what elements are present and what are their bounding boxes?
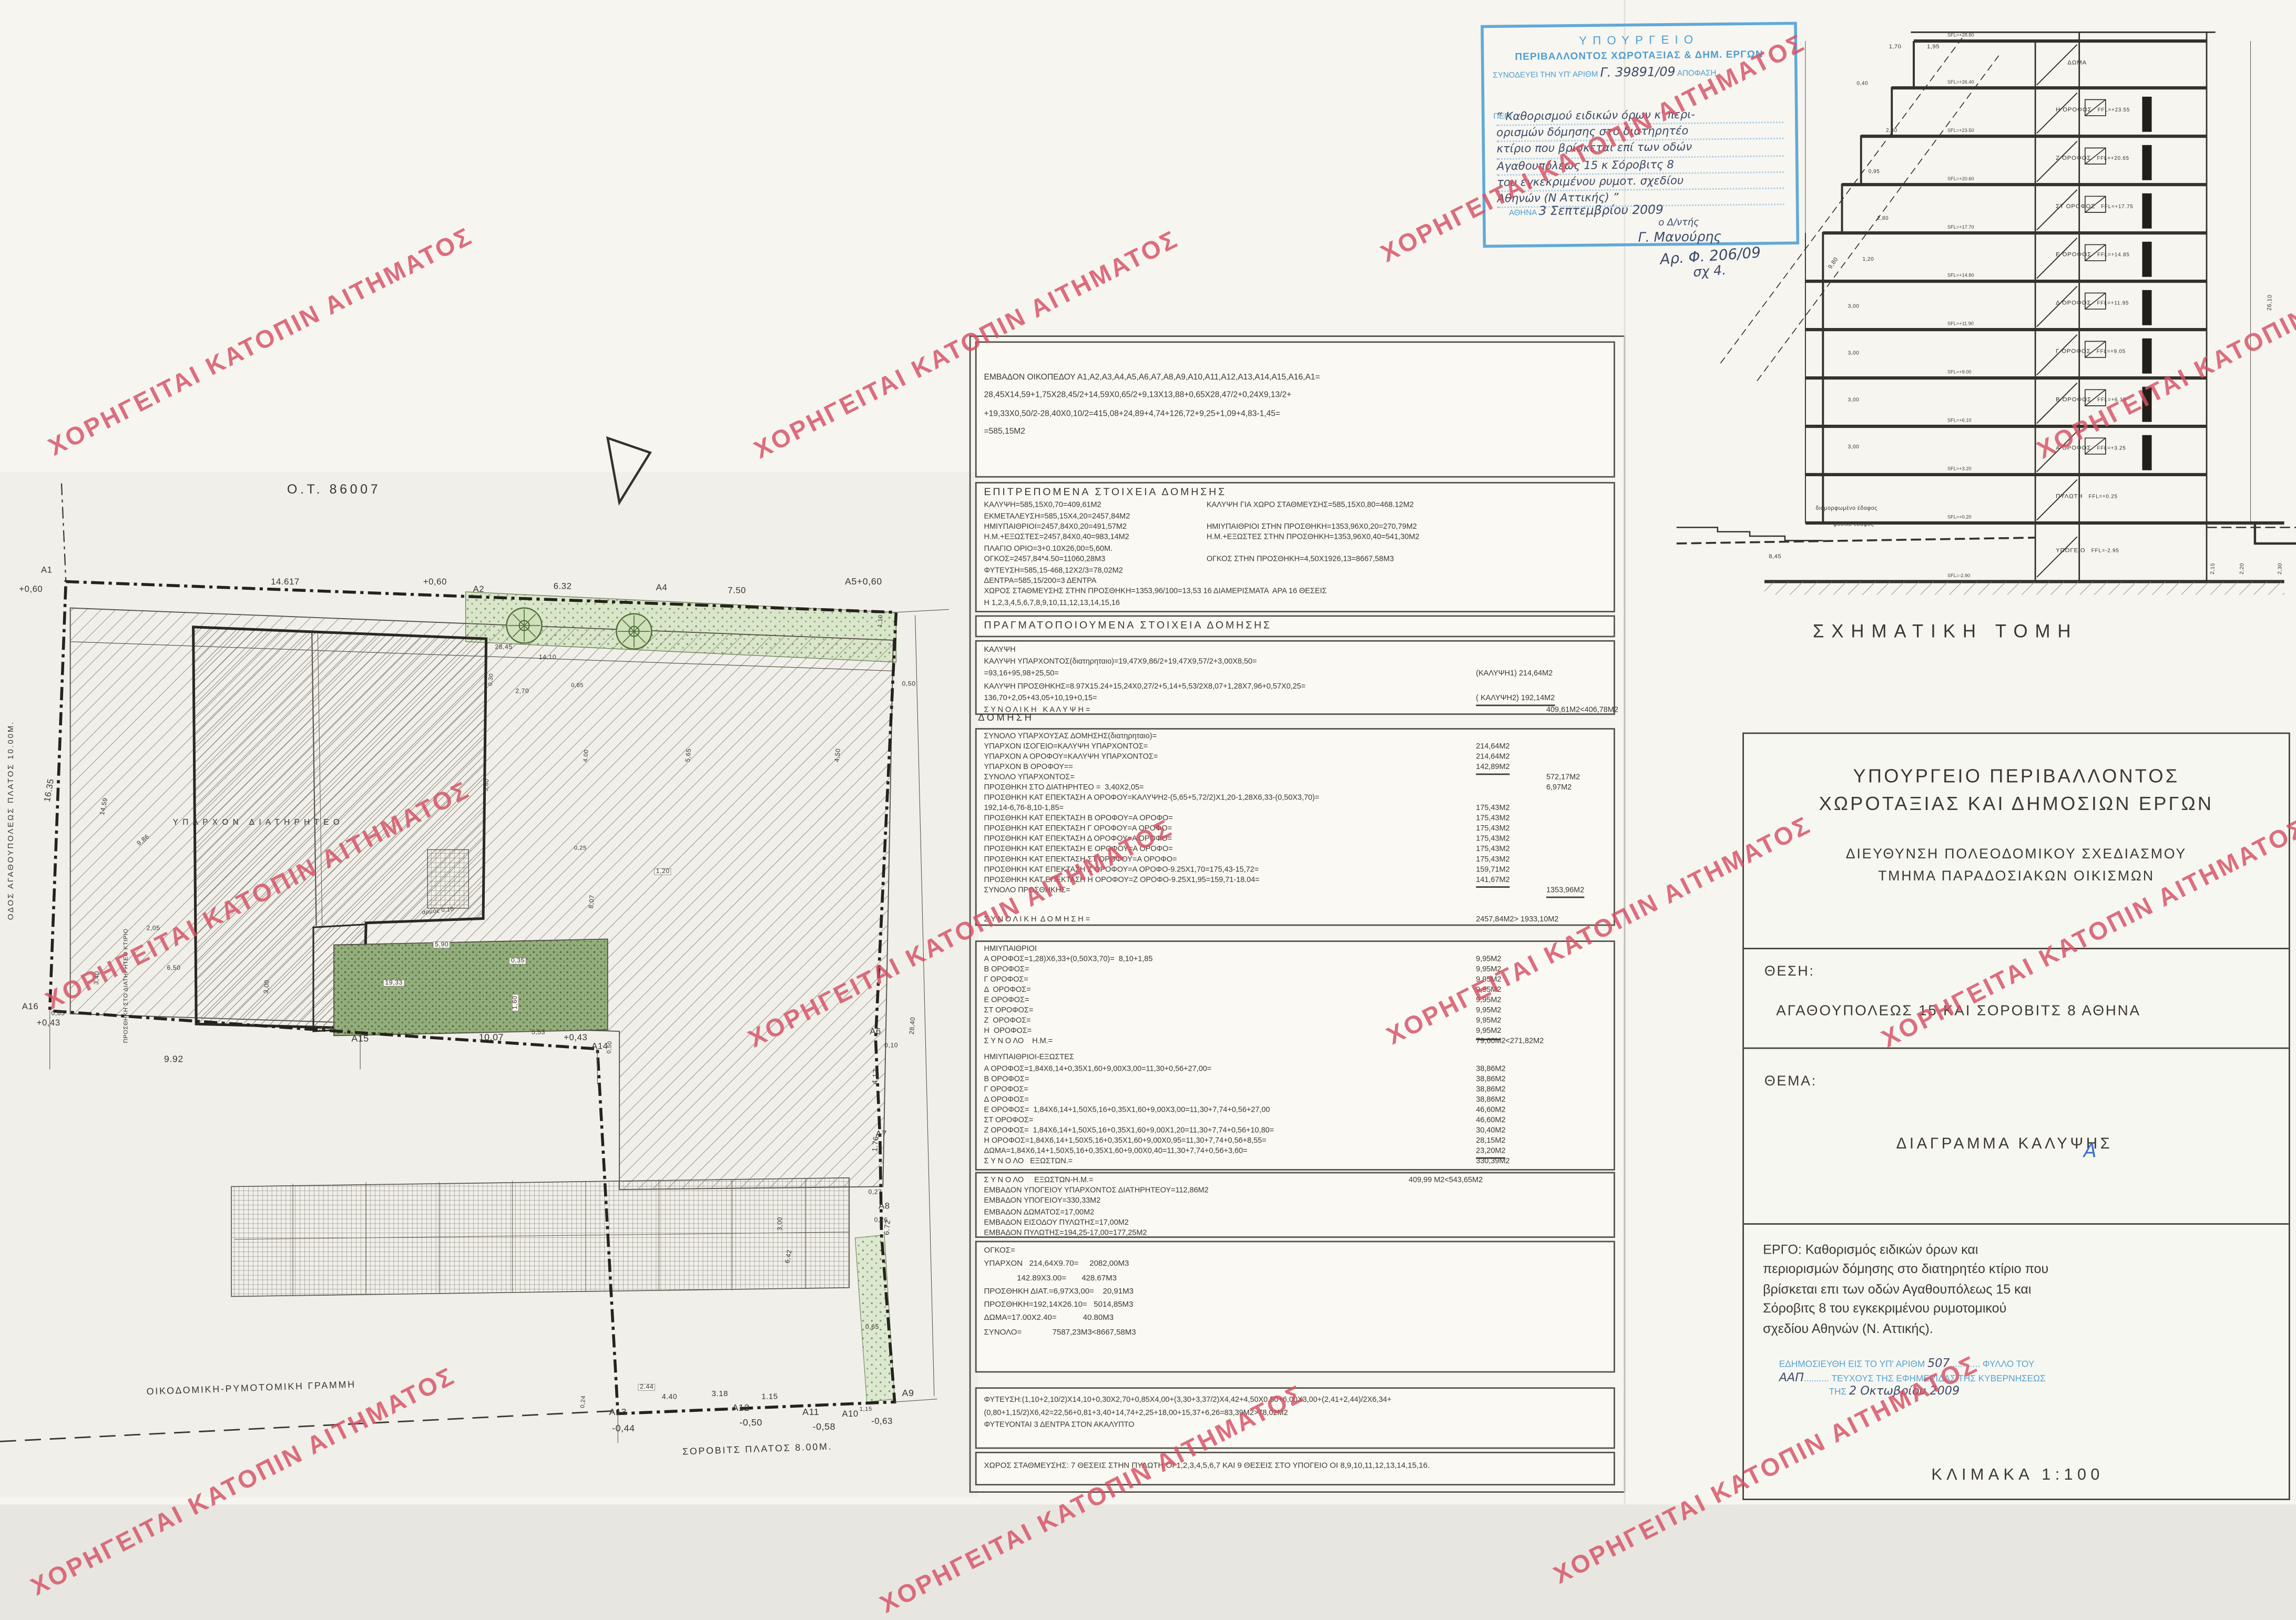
calc-row: ΠΡΟΣΘΗΚΗ ΚΑΤ ΕΠΕΚΤΑΣΗ Ε ΟΡΟΦΟΥ=Α ΟΡΟΦΟ=1… xyxy=(984,845,1607,856)
sfl-label: SFL=+28.80 xyxy=(1947,32,1974,38)
sfl-label: SFL=+17.70 xyxy=(1947,224,1974,230)
divider xyxy=(1744,948,2289,949)
stamp-ref-row: ΣΥΝΟΔΕΥΕΙ ΤΗΝ ΥΠ' ΑΡΙΘΜ Γ. 39891/09 ΑΠΟΦ… xyxy=(1493,64,1789,82)
calc-row: ΟΓΚΟΣ=2457,84*4.50=11060,28Μ3ΟΓΚΟΣ ΣΤΗΝ … xyxy=(984,556,1607,567)
plan-label: 0,24 xyxy=(580,1395,587,1408)
allowed-terms-box: ΕΠΙΤΡΕΠΟΜΕΝΑ ΣΤΟΙΧΕΙΑ ΔΟΜΗΣΗΣ ΚΑΛΥΨΗ=585… xyxy=(975,482,1615,612)
volume-box: ΟΓΚΟΣ=ΥΠΑΡΧΟΝ 214,64Χ9.70= 2082,00Μ3 142… xyxy=(975,1241,1615,1373)
calc-row: Η 1,2,3,4,5,6,7,8,9,10,11,12,13,14,15,16 xyxy=(984,599,1607,610)
calc-row: ΔΩΜΑ=1,84Χ6,14+1,50Χ5,16+0,35Χ1,60+9,00Χ… xyxy=(984,1147,1607,1157)
calc-row: ΠΡΟΣΘΗΚΗ ΚΑΤ ΕΠΕΚΤΑΣΗ Η ΟΡΟΦΟΥ=Ζ ΟΡΟΦΟ-9… xyxy=(984,876,1607,887)
coverage-box: ΚΑΛΥΨΗΚΑΛΥΨΗ ΥΠΑΡΧΟΝΤΟΣ(διατηρηταιο)=19,… xyxy=(975,640,1615,715)
plan-label: 4.17 xyxy=(873,1069,881,1084)
plan-label: +0,43 xyxy=(37,1020,60,1029)
calc-row: ΠΡΟΣΘΗΚΗ ΚΑΤ ΕΠΕΚΤΑΣΗ ΣΤ ΟΡΟΦΟΥ=Α ΟΡΟΦΟ=… xyxy=(984,856,1607,866)
gazette-date: 2 Οκτωβρίου 2009 xyxy=(1849,1385,1960,1398)
section-dim: 2,80 xyxy=(1877,217,1889,222)
domisi-title: ΔΟΜΗΣΗ xyxy=(978,713,1034,724)
plan-label: 0,50 xyxy=(902,681,916,688)
location-label: ΘΕΣΗ: xyxy=(1764,964,1815,980)
plan-label: -0,58 xyxy=(813,1424,835,1433)
plan-label: Α12 xyxy=(732,1405,750,1414)
calc-line: ΣΥΝΟΛΟ= 7587,23Μ3<8667,58Μ3 xyxy=(984,1327,1607,1340)
plan-label: 28,40 xyxy=(909,1017,917,1034)
gazette-series: ΑΑΠ xyxy=(1779,1370,1804,1383)
calc-row: Η ΟΡΟΦΟΣ=9,95Μ2 xyxy=(984,1028,1607,1038)
section-dim: φυσικό έδαφος xyxy=(1833,523,1874,529)
tree-icon xyxy=(616,614,651,649)
section-dim: 3,00 xyxy=(1848,305,1860,310)
calc-line: ΦΥΤΕΥΣΗ:(1,10+2,10/2)Χ14,10+0,30Χ2,70+0,… xyxy=(984,1395,1607,1407)
plan-label: 9.92 xyxy=(164,1056,183,1065)
plan-label: Α8 xyxy=(879,1203,890,1212)
section-dim: διαμορφωμένο έδαφος xyxy=(1815,507,1877,512)
plan-label: Α15 xyxy=(351,1035,369,1045)
calc-line: +19,33Χ0,50/2-28,40Χ0,10/2=415,08+24,89+… xyxy=(984,405,1607,424)
section-dim: 3,00 xyxy=(1848,352,1860,357)
plan-label: 6.32 xyxy=(554,583,572,592)
section-dim: 0,40 xyxy=(1856,82,1868,87)
calc-row: Σ Υ Ν Ο Λ Ι Κ Η Δ Ο Μ Η Σ Η =2457,84Μ2> … xyxy=(984,916,1607,926)
stamp-ref-number: Γ. 39891/09 xyxy=(1600,66,1675,81)
stamp-title: ΥΠΟΥΡΓΕΙΟ xyxy=(1484,32,1794,48)
calc-line: 142.89Χ3.00= 428.67Μ3 xyxy=(984,1273,1607,1286)
section-dim: 8,45 xyxy=(1769,553,1781,559)
calc-row: Σ Υ Ν Ο ΛΟ ΕΞΩΣΤΩΝ-Η.Μ.=409,99 Μ2<543,65… xyxy=(984,1176,1607,1187)
calc-row: Β ΟΡΟΦΟΣ=38,86Μ2 xyxy=(984,1074,1607,1085)
floor-label: Δ ΟΡΟΦΟΣFFL=+11.95 xyxy=(2056,299,2129,306)
floor-label: Γ ΟΡΟΦΟΣFFL=+9.05 xyxy=(2056,347,2126,355)
calc-row: ΕΜΒΑΔΟΝ ΥΠΟΓΕΙΟΥ ΥΠΑΡΧΟΝΤΟΣ ΔΙΑΤΗΡΗΤΕΟΥ=… xyxy=(984,1187,1607,1197)
plan-label: ΠΡΟΣΘΗΚΗ ΣΤΟ ΔΙΑΤΗΡΗΤΕΟ ΚΤΙΡΙΟ xyxy=(123,929,129,1043)
section-dim: 3,00 xyxy=(1848,398,1860,404)
calc-row: ΠΡΟΣΘΗΚΗ ΚΑΤ ΕΠΕΚΤΑΣΗ Δ ΟΡΟΦΟΥ=Α ΟΡΟΦΟ=1… xyxy=(984,835,1607,846)
parking-line: ΧΩΡΟΣ ΣΤΑΘΜΕΥΣΗΣ: 7 ΘΕΣΕΙΣ ΣΤΗΝ ΠΥΛΩΤΗ Ο… xyxy=(984,1462,1607,1472)
project-line: βρίσκεται επι των οδών Αγαθουπόλεως 15 κ… xyxy=(1763,1280,2272,1299)
sfl-label: SFL=+0.20 xyxy=(1947,514,1971,520)
section-dim: 2,15 xyxy=(2211,563,2217,575)
calc-row: Σ Υ Ν Ο Λ Ι Κ Η Κ Α Λ Υ Ψ Η =409,61Μ2<40… xyxy=(984,705,1607,717)
plan-label: 2,05 xyxy=(147,926,160,932)
plan-label: 0,35 xyxy=(509,958,526,965)
calc-row: ΗΜΙΥΠΑΙΘΡΙΟΙ xyxy=(984,945,1607,956)
floor-label: Α ΟΡΟΦΟΣFFL=+3.25 xyxy=(2056,444,2126,451)
calc-row: ΚΑΛΥΨΗ xyxy=(984,644,1607,657)
plan-label: Α2 xyxy=(473,586,485,595)
calc-row: Ε ΟΡΟΦΟΣ= 1,84Χ6,14+1,50Χ5,16+0,35Χ1,60+… xyxy=(984,1105,1607,1116)
plan-label: Α9 xyxy=(902,1390,914,1400)
plan-label: 7.50 xyxy=(728,588,746,597)
totals-box: Σ Υ Ν Ο ΛΟ ΕΞΩΣΤΩΝ-Η.Μ.=409,99 Μ2<543,65… xyxy=(975,1172,1615,1238)
sfl-label: SFL=+14.80 xyxy=(1947,272,1974,278)
floor-label: Η ΟΡΟΦΟΣFFL=+23.55 xyxy=(2056,106,2130,113)
calc-line: 28,45Χ14,59+1,75Χ28,45/2+14,59Χ0,65/2+9,… xyxy=(984,387,1607,406)
plan-label: 28,45 xyxy=(495,644,512,651)
title-block: ΥΠΟΥΡΓΕΙΟ ΠΕΡΙΒΑΛΛΟΝΤΟΣ ΧΩΡΟΤΑΞΙΑΣ ΚΑΙ Δ… xyxy=(1742,733,2290,1500)
plan-label: 3.18 xyxy=(712,1392,728,1400)
project-line: σχεδίου Αθηνών (Ν. Αττικής). xyxy=(1763,1319,2272,1339)
calc-line: =585,15Μ2 xyxy=(984,424,1607,442)
plan-label: 14.617 xyxy=(271,579,299,588)
plan-label: 8,07 xyxy=(589,895,596,909)
plan-label: 0,27 xyxy=(869,1190,882,1196)
plan-label: +0,60 xyxy=(19,586,43,595)
drawing-sheet: Ο.Τ. 86007Α1+0,6014.617+0,60Α26.32Α47.50… xyxy=(0,0,2296,1504)
stamp-handwriting: “ Καθορισμού ειδικών όρων κ' περι-ορισμώ… xyxy=(1496,107,1784,208)
calc-line: ΦΥΤΕΥΟΝΤΑΙ 3 ΔΕΝΤΡΑ ΣΤΟΝ ΑΚΑΛΥΠΤΟ xyxy=(984,1420,1607,1432)
calc-row: Β ΟΡΟΦΟΣ=9,95Μ2 xyxy=(984,966,1607,976)
planting-box: ΦΥΤΕΥΣΗ:(1,10+2,10/2)Χ14,10+0,30Χ2,70+0,… xyxy=(975,1387,1615,1449)
calc-row: Σ Υ Ν Ο ΛΟ ΕΞΩΣΤΩΝ.=330,39Μ2 xyxy=(984,1157,1607,1168)
plan-label: 0,25 xyxy=(574,845,587,851)
project-line: ΕΡΓΟ: Καθορισμός ειδικών όρων και xyxy=(1763,1241,2272,1260)
floor-label: ΣΤ ΟΡΟΦΟΣFFL=+17.75 xyxy=(2056,202,2133,210)
divider xyxy=(1744,1223,2289,1225)
calc-row: ΕΜΒΑΔΟΝ ΠΥΛΩΤΗΣ=194,25-17,00=177,25Μ2 xyxy=(984,1229,1607,1239)
stamp-director: ο Δ/ντής xyxy=(1658,216,1699,228)
floor-label: ΠΥΛΩΤΗFFL=+0.25 xyxy=(2056,492,2118,499)
plan-label: 3,40 xyxy=(94,971,101,985)
tree-icon xyxy=(507,608,542,643)
calc-row: ΕΜΒΑΔΟΝ ΥΠΟΓΕΙΟΥ=330,33Μ2 xyxy=(984,1197,1607,1208)
plan-label: 4.00 xyxy=(583,749,589,762)
calc-row xyxy=(984,1048,1607,1054)
north-arrow-icon xyxy=(593,434,660,507)
calc-row: Ε ΟΡΟΦΟΣ=9,95Μ2 xyxy=(984,997,1607,1007)
calc-line: ΟΓΚΟΣ= xyxy=(984,1245,1607,1259)
sfl-label: SFL=+26.40 xyxy=(1947,79,1974,85)
section-dim: 26,10 xyxy=(2267,294,2273,311)
plan-label: Α11 xyxy=(802,1409,819,1419)
calc-row: ΠΡΟΣΘΗΚΗ ΣΤΟ ΔΙΑΤΗΡΗΤΕΟ = 3,40Χ2,05=6,97… xyxy=(984,784,1607,794)
parking-box: ΧΩΡΟΣ ΣΤΑΘΜΕΥΣΗΣ: 7 ΘΕΣΕΙΣ ΣΤΗΝ ΠΥΛΩΤΗ Ο… xyxy=(975,1452,1615,1485)
calc-row: ΚΑΛΥΨΗ=585,15Χ0,70=409,61Μ2ΚΑΛΥΨΗ ΓΙΑ ΧΩ… xyxy=(984,501,1607,512)
plan-label: Α6 xyxy=(870,1028,881,1037)
plan-label: 5,65 xyxy=(685,748,692,762)
calc-row: ΚΑΛΥΨΗ ΥΠΑΡΧΟΝΤΟΣ(διατηρηταιο)=19,47Χ9,8… xyxy=(984,657,1607,669)
calc-row: ΧΩΡΟΣ ΣΤΑΘΜΕΥΣΗΣ ΣΤΗΝ ΠΡΟΣΘΗΚΗ=1353,96/1… xyxy=(984,588,1607,599)
subject-label: ΘΕΜΑ: xyxy=(1764,1074,1817,1090)
calc-row: ΠΡΟΣΘΗΚΗ ΚΑΤ ΕΠΕΚΤΑΣΗ Β ΟΡΟΦΟΥ=Α ΟΡΟΦΟ=1… xyxy=(984,815,1607,825)
plan-label: Α4 xyxy=(656,585,668,593)
calc-row: ΣΥΝΟΛΟ ΥΠΑΡΧΟΝΤΟΣ=572,17Μ2 xyxy=(984,774,1607,784)
calc-row: ΠΡΟΣΘΗΚΗ ΚΑΤ ΕΠΕΚΤΑΣΗ Α ΟΡΟΦΟΥ=ΚΑΛΥΨΗ2-(… xyxy=(984,794,1607,805)
plan-label: 1,60 xyxy=(513,994,519,1011)
floor-label: Ζ ΟΡΟΦΟΣFFL=+20.65 xyxy=(2056,154,2129,161)
calc-row: 136,70+2,05+43,05+10,19+0,15=( ΚΑΛΥΨΗ2) … xyxy=(984,693,1607,705)
stamp-signature: Γ. Μανούρης xyxy=(1638,231,1722,247)
plan-label: 10.07 xyxy=(479,1034,504,1044)
sfl-label: SFL=-2.90 xyxy=(1947,573,1970,579)
joint-shaft xyxy=(427,849,468,908)
plan-label: +0,60 xyxy=(423,579,447,588)
calc-row: ΕΚΜΕΤΑΛΕΥΣΗ=585,15Χ4,20=2457,84Μ2 xyxy=(984,512,1607,523)
calc-row: ΥΠΑΡΧΟΝ ΙΣΟΓΕΙΟ=ΚΑΛΥΨΗ ΥΠΑΡΧΟΝΤΟΣ=214,64… xyxy=(984,743,1607,753)
sfl-label: SFL=+9.00 xyxy=(1947,369,1971,375)
calc-row: ΣΤ ΟΡΟΦΟΣ=46,60Μ2 xyxy=(984,1116,1607,1126)
plan-label: 3,00 xyxy=(778,1217,784,1231)
calc-row: Ζ ΟΡΟΦΟΣ= 1,84Χ6,14+1,50Χ5,16+0,35Χ1,60+… xyxy=(984,1126,1607,1137)
ministry-name2: ΧΩΡΟΤΑΞΙΑΣ ΚΑΙ ΔΗΜΟΣΙΩΝ ΕΡΓΩΝ xyxy=(1744,793,2289,815)
calc-row: ΗΜΙΥΠΑΙΘΡΙΟΙ-ΕΞΩΣΤΕΣ xyxy=(984,1054,1607,1064)
plan-label: Α1 xyxy=(41,567,53,576)
divider xyxy=(1744,1048,2289,1049)
section-dim: 0,95 xyxy=(1869,170,1880,175)
plan-label: 5,90 xyxy=(433,942,450,948)
location-value: ΑΓΑΘΟΥΠΟΛΕΩΣ 15 ΚΑΙ ΣΟΡΟΒΙΤΣ 8 ΑΘΗΝΑ xyxy=(1776,1003,2141,1020)
section-dim: 1,70 xyxy=(1889,44,1902,50)
plan-label: 0,65 xyxy=(865,1324,879,1330)
ministry-stamp: ΥΠΟΥΡΓΕΙΟ ΠΕΡΙΒΑΛΛΟΝΤΟΣ ΧΩΡΟΤΑΞΙΑΣ & ΔΗΜ… xyxy=(1481,22,1799,248)
project-line: Σόροβιτς 8 του εγκεκριμένου ρυμοτομικού xyxy=(1763,1300,2272,1319)
floor-label: Ε ΟΡΟΦΟΣFFL=+14.85 xyxy=(2056,251,2129,258)
calc-row: ΥΠΑΡΧΟΝ Α ΟΡΟΦΟΥ=ΚΑΛΥΨΗ ΥΠΑΡΧΟΝΤΟΣ=214,6… xyxy=(984,753,1607,764)
calc-row: Δ ΟΡΟΦΟΣ=38,86Μ2 xyxy=(984,1095,1607,1106)
plan-label: ΥΠΑΡΧΟΝ ΔΙΑΤΗΡΗΤΕΟ xyxy=(173,821,344,828)
plan-label: Α13 xyxy=(609,1409,627,1419)
site-plan-drawing xyxy=(0,0,996,1504)
plan-label: 5,53 xyxy=(532,1030,545,1036)
plan-label: 0,85 xyxy=(571,683,584,689)
plan-label: 19,33 xyxy=(384,980,404,987)
calc-row: Α ΟΡΟΦΟΣ=1,28)Χ6,33+(0,50Χ3,70)= 8,10+1,… xyxy=(984,955,1607,966)
calc-row: ΗΜΙΥΠΑΙΘΡΙΟΙ=2457,84Χ0,20=491,57Μ2ΗΜΙΥΠΑ… xyxy=(984,523,1607,534)
calc-row: Σ Υ Ν Ο ΛΟ Η.Μ.=79,60Μ2<271,82Μ2 xyxy=(984,1038,1607,1048)
gazette-number: 507 xyxy=(1927,1357,1950,1370)
plan-label: 0,30 xyxy=(487,673,494,686)
semi-open-box: ΗΜΙΥΠΑΙΘΡΙΟΙΑ ΟΡΟΦΟΣ=1,28)Χ6,33+(0,50Χ3,… xyxy=(975,940,1615,1171)
calc-row: Γ ΟΡΟΦΟΣ=9,95Μ2 xyxy=(984,976,1607,987)
calc-row: ΚΑΛΥΨΗ ΠΡΟΣΘΗΚΗΣ=8.97Χ15.24+15,24Χ0,27/2… xyxy=(984,681,1607,693)
section-dim: 2,80 xyxy=(1886,129,1897,134)
section-dim: 3,00 xyxy=(1848,445,1860,450)
plan-label: 4.40 xyxy=(662,1395,677,1402)
section-dim: 2,30 xyxy=(2278,563,2284,575)
calc-row: ΣΥΝΟΛΟ ΥΠΑΡΧΟΥΣΑΣ ΔΟΜΗΣΗΣ(διατηρηταιο)= xyxy=(984,733,1607,743)
calc-line: ΕΜΒΑΔΟΝ ΟΙΚΟΠΕΔΟΥ Α1,Α2,Α3,Α4,Α5,Α6,Α7,Α… xyxy=(984,369,1607,387)
calc-row: ΥΠΑΡΧΟΝ Β ΟΡΟΦΟΥ==142,89Μ2 xyxy=(984,763,1607,774)
calc-row: Α ΟΡΟΦΟΣ=1,84Χ6,14+0,35Χ1,60+9,00Χ3,00=1… xyxy=(984,1064,1607,1075)
terrace-grid xyxy=(231,1178,849,1297)
section-dim: 1,20 xyxy=(1863,258,1874,263)
section-title: ΕΠΙΤΡΕΠΟΜΕΝΑ ΣΤΟΙΧΕΙΑ ΔΟΜΗΣΗΣ xyxy=(984,488,1607,498)
calc-row: Η ΟΡΟΦΟΣ=1,84Χ6,14+1,50Χ5,16+0,35Χ1,60+9… xyxy=(984,1136,1607,1147)
built-area-box: ΣΥΝΟΛΟ ΥΠΑΡΧΟΥΣΑΣ ΔΟΜΗΣΗΣ(διατηρηταιο)=Υ… xyxy=(975,728,1615,926)
publication-stamp: ΕΔΗΜΟΣΙΕΥΘΗ ΕΙΣ ΤΟ ΥΠ' ΑΡΙΘΜ 507........… xyxy=(1779,1358,2046,1400)
plan-label: 5,80 xyxy=(483,778,490,792)
plan-label: Α16 xyxy=(22,1003,38,1012)
plan-label: -0,63 xyxy=(871,1418,893,1427)
plan-label: 3,00 xyxy=(263,980,271,994)
directorate: ΔΙΕΥΘΥΝΣΗ ΠΟΛΕΟΔΟΜΙΚΟΥ ΣΧΕΔΙΑΣΜΟΥ xyxy=(1744,847,2289,863)
plan-label: +0,43 xyxy=(564,1034,587,1043)
project-line: περιορισμών δόμησης στο διατηρητέο κτίρι… xyxy=(1763,1260,2272,1280)
plan-label: 0,65 xyxy=(51,1011,65,1017)
calc-line: ΔΩΜΑ=17.00Χ2.40= 40.80Μ3 xyxy=(984,1314,1607,1327)
plan-label: 2,70 xyxy=(515,689,529,695)
stamp-subtitle: ΠΕΡΙΒΑΛΛΟΝΤΟΣ ΧΩΡΟΤΑΞΙΑΣ & ΔΗΜ. ΕΡΓΩΝ xyxy=(1484,49,1794,63)
calc-row: ΕΜΒΑΔΟΝ ΔΩΜΑΤΟΣ=17,00Μ2 xyxy=(984,1208,1607,1218)
plan-label: 1,20 xyxy=(655,869,671,875)
section-caption: ΣΧΗΜΑΤΙΚΗ ΤΟΜΗ xyxy=(1813,621,2078,642)
sfl-label: SFL=+3.20 xyxy=(1947,466,1971,471)
plan-label: 1.76 xyxy=(873,1136,881,1152)
calc-row: 192,14-6,76-8,10-1,85=175,43Μ2 xyxy=(984,804,1607,815)
plan-label: 2.44 xyxy=(638,1385,655,1391)
calc-row xyxy=(984,897,1607,916)
calc-row: Η.Μ.+ΕΞΩΣΤΕΣ=2457,84Χ0,40=983,14Μ2Η.Μ.+Ε… xyxy=(984,534,1607,545)
subject-annotation: Α xyxy=(2084,1141,2097,1163)
department: ΤΜΗΜΑ ΠΑΡΑΔΟΣΙΑΚΩΝ ΟΙΚΙΣΜΩΝ xyxy=(1744,869,2289,885)
calc-row: ΣΥΝΟΛΟ ΠΡΟΣΘΗΚΗΣ=1353,96Μ2 xyxy=(984,886,1607,897)
calc-row: ΠΛΑΓΙΟ ΟΡΙΟ=3+0.10Χ26,00=5,60Μ. xyxy=(984,545,1607,556)
sfl-label: SFL=+20.60 xyxy=(1947,176,1974,181)
plan-label: 1,15 xyxy=(860,1407,872,1412)
actual-terms-header: ΠΡΑΓΜΑΤΟΠΟΙΟΥΜΕΝΑ ΣΤΟΙΧΕΙΑ ΔΟΜΗΣΗΣ xyxy=(975,616,1615,638)
plan-label: 6.72 xyxy=(884,1219,893,1235)
subject-value: ΔΙΑΓΡΑΜΜΑ ΚΑΛΥΨΗΣ xyxy=(1896,1135,2113,1153)
plan-label: 4,50 xyxy=(834,748,842,762)
project-description: ΕΡΓΟ: Καθορισμός ειδικών όρων καιπεριορι… xyxy=(1763,1241,2272,1339)
plan-label: 6,50 xyxy=(167,966,180,972)
calc-line: ΠΡΟΣΘΗΚΗ=192,14Χ26.10= 5014,85Μ3 xyxy=(984,1300,1607,1314)
floor-label: Β ΟΡΟΦΟΣFFL=+6.15 xyxy=(2056,395,2126,403)
calc-row: ΕΜΒΑΔΟΝ ΕΙΣΟΔΟΥ ΠΥΛΩΤΗΣ=17,00Μ2 xyxy=(984,1218,1607,1229)
plan-label: ΟΔΟΣ ΑΓΑΘΟΥΠΟΛΕΩΣ ΠΛΑΤΟΣ 10.00Μ. xyxy=(9,721,17,920)
calc-line: ΠΡΟΣΘΗΚΗ ΔΙΑΤ.=6,97Χ3,00= 20,91Μ3 xyxy=(984,1286,1607,1300)
sfl-label: SFL=+23.50 xyxy=(1947,127,1974,133)
calc-row: ΠΡΟΣΘΗΚΗ ΚΑΤ ΕΠΕΚΤΑΣΗ Γ ΟΡΟΦΟΥ=Α ΟΡΟΦΟ=1… xyxy=(984,825,1607,835)
plan-label: 1.15 xyxy=(761,1395,778,1402)
calc-row: =93,16+95,98+25,50=(ΚΑΛΥΨΗ1) 214,64Μ2 xyxy=(984,669,1607,681)
sfl-label: SFL=+6.10 xyxy=(1947,417,1971,423)
ministry-name: ΥΠΟΥΡΓΕΙΟ ΠΕΡΙΒΑΛΛΟΝΤΟΣ xyxy=(1744,765,2289,787)
plan-label: 1,10 xyxy=(877,614,884,628)
section-dim: 2,20 xyxy=(2240,563,2246,575)
sfl-label: SFL=+11.90 xyxy=(1947,321,1974,326)
section-title: ΠΡΑΓΜΑΤΟΠΟΙΟΥΜΕΝΑ ΣΤΟΙΧΕΙΑ ΔΟΜΗΣΗΣ xyxy=(984,621,1607,632)
calc-row: Γ ΟΡΟΦΟΣ=38,86Μ2 xyxy=(984,1085,1607,1095)
stamp-date-row: ΑΘΗΝΑ 3 Σεπτεμβρίου 2009 xyxy=(1509,202,1664,218)
calc-line: ΥΠΑΡΧΟΝ 214,64Χ9.70= 2082,00Μ3 xyxy=(984,1259,1607,1273)
plan-label: 0,50 xyxy=(606,1041,613,1054)
calc-row: Δ ΟΡΟΦΟΣ=9,95Μ2 xyxy=(984,986,1607,997)
plan-label: 14,10 xyxy=(539,655,556,661)
scale-label: ΚΛΙΜΑΚΑ 1:100 xyxy=(1931,1467,2104,1484)
plan-label: Α10 xyxy=(842,1411,858,1420)
plan-label: -0,44 xyxy=(612,1426,635,1435)
section-dim: 1,95 xyxy=(1927,44,1940,50)
floor-label: ΥΠΟΓΕΙΟFFL=-2.95 xyxy=(2056,547,2119,554)
section-doors xyxy=(2142,97,2151,470)
calc-row: ΣΤ ΟΡΟΦΟΣ=9,95Μ2 xyxy=(984,1007,1607,1017)
calc-row: ΦΥΤΕΥΣΗ=585,15-468,12Χ2/3=78,02Μ2 xyxy=(984,566,1607,577)
planter-area xyxy=(334,939,608,1035)
floor-label: ΔΩΜΑ xyxy=(2067,58,2093,66)
calc-row: ΠΡΟΣΘΗΚΗ ΚΑΤ ΕΠΕΚΤΑΣΗ Ζ ΟΡΟΦΟΥ=Α ΟΡΟΦΟ-9… xyxy=(984,866,1607,876)
calc-row: Ζ ΟΡΟΦΟΣ=9,95Μ2 xyxy=(984,1017,1607,1028)
calc-row: ΔΕΝΤΡΑ=585,15/200=3 ΔΕΝΤΡΑ xyxy=(984,577,1607,588)
calc-line: (0,80+1,15/2)Χ6,42=22,56+0,81+3,40+14,74… xyxy=(984,1407,1607,1420)
plan-label: Ο.Τ. 86007 xyxy=(287,484,381,497)
plan-label: 0,10 xyxy=(884,1043,898,1049)
plan-label: Α5+0,60 xyxy=(845,579,882,588)
plan-label: -0,50 xyxy=(739,1420,762,1429)
plot-area-box: ΕΜΒΑΔΟΝ ΟΙΚΟΠΕΔΟΥ Α1,Α2,Α3,Α4,Α5,Α6,Α7,Α… xyxy=(975,341,1615,477)
